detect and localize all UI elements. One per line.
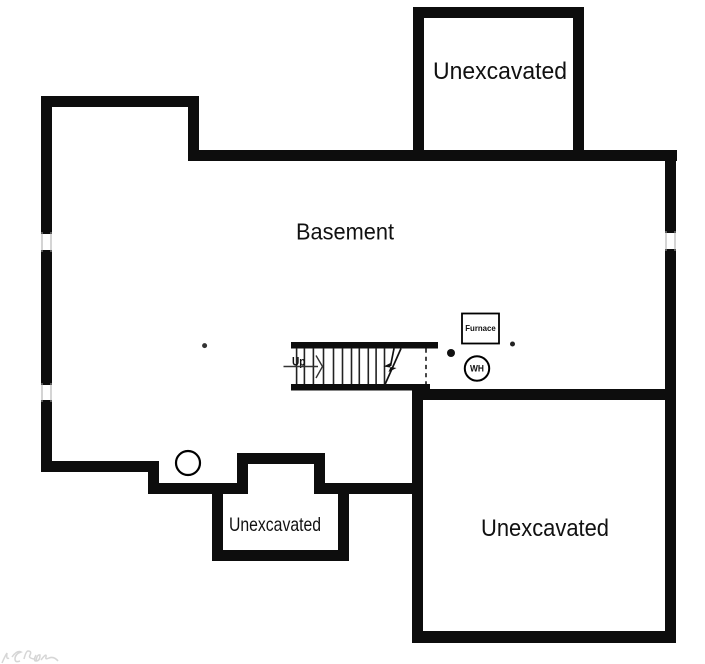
svg-text:Unexcavated: Unexcavated xyxy=(433,58,567,85)
svg-text:Basement: Basement xyxy=(296,219,395,245)
svg-text:WH: WH xyxy=(470,364,484,374)
svg-text:Unexcavated: Unexcavated xyxy=(481,515,609,542)
svg-text:Unexcavated: Unexcavated xyxy=(229,514,321,536)
svg-text:Furnace: Furnace xyxy=(465,324,496,333)
